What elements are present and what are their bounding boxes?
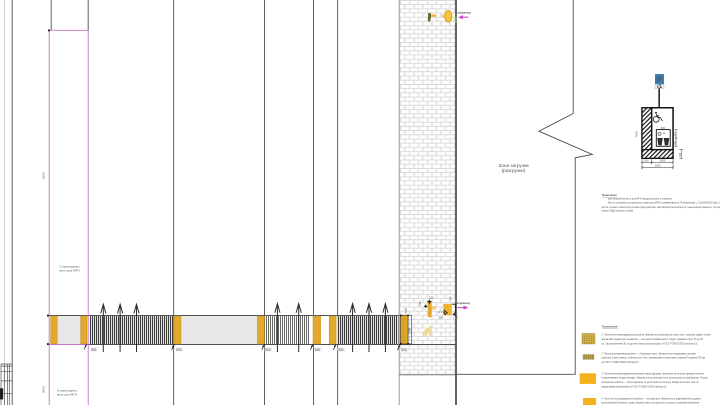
svg-text:нормы ПДД широкого плана.: нормы ПДД широкого плана. <box>602 210 634 213</box>
svg-text:P: P <box>657 76 663 85</box>
svg-text:месте стоянки транспорта долже: месте стоянки транспорта должен предусмо… <box>602 206 720 209</box>
svg-text:500: 500 <box>439 316 444 320</box>
svg-text:1:10: 1:10 <box>453 316 459 320</box>
svg-text:Позначення:: Позначення: <box>602 324 618 328</box>
svg-text:2000: 2000 <box>655 164 661 168</box>
svg-text:500: 500 <box>449 296 453 301</box>
svg-text:150: 150 <box>679 152 682 157</box>
svg-text:вхід/вихід: вхід/вихід <box>457 301 470 305</box>
svg-text:500: 500 <box>315 348 321 352</box>
svg-text:(разгрузки): (разгрузки) <box>502 168 526 173</box>
svg-text:розташування В верхніх сходів.: розташування В верхніх сходів. Ширина см… <box>601 402 700 405</box>
svg-text:форми або продольних елементів: форми або продольних елементів — на перш… <box>601 338 703 341</box>
svg-text:2. Тактильна напрямна розмітка: 2. Тактильна напрямна розмітка — «Напрям… <box>601 352 696 355</box>
svg-text:1. Тактильна попереджувальна р: 1. Тактильна попереджувальна розмітка. В… <box>601 334 711 337</box>
svg-text:шириною 8 (або чинна), глибино: шириною 8 (або чинна), глибиною до 5 мм … <box>601 357 705 360</box>
svg-text:150: 150 <box>674 132 677 137</box>
svg-text:500: 500 <box>338 348 344 352</box>
svg-text:500: 500 <box>661 126 666 130</box>
svg-text:см. За розміщенням 30 см до ме: см. За розміщенням 30 см до межі зони ру… <box>601 342 698 345</box>
svg-text:4000: 4000 <box>635 131 639 137</box>
svg-text:3. Тактильна попереджувальна р: 3. Тактильна попереджувальна розмітка пе… <box>601 372 704 375</box>
svg-text:1500: 1500 <box>659 159 665 163</box>
svg-text:500: 500 <box>404 308 408 313</box>
svg-text:500: 500 <box>265 348 271 352</box>
svg-text:контрастна розмітка — смуга ши: контрастна розмітка — смуга шириною 10 д… <box>601 381 699 384</box>
svg-text:вхід/вихід: вхід/вихід <box>458 10 471 14</box>
svg-text:500: 500 <box>401 348 407 352</box>
svg-text:до ГОСТ Р 52875-2018 (таблиця: до ГОСТ Р 52875-2018 (таблиця 2). <box>601 362 639 364</box>
svg-text:4. Тактильні попереджувальні р: 4. Тактильні попереджувальні розмітки — … <box>601 397 701 400</box>
svg-text:500: 500 <box>176 348 182 352</box>
svg-text:150: 150 <box>674 140 677 145</box>
svg-text:мест для МГН: мест для МГН <box>57 393 77 397</box>
svg-text:500: 500 <box>429 295 434 299</box>
svg-text:500: 500 <box>644 159 649 163</box>
svg-text:в organізованих входах-виходах: в organізованих входах-виходах. Ширина п… <box>601 377 708 380</box>
svg-text:нормативами визначений по ГОСТ: нормативами визначений по ГОСТ Р 52875-2… <box>601 385 667 388</box>
svg-text:1500: 1500 <box>408 327 412 334</box>
svg-text:+0.150: +0.150 <box>437 310 446 314</box>
svg-text:5000: 5000 <box>42 172 46 179</box>
svg-text:мест для МГН: мест для МГН <box>59 269 79 273</box>
svg-text:Место установки специального з: Место установки специального знака для М… <box>608 202 720 205</box>
svg-text:500: 500 <box>418 301 422 306</box>
svg-text:для устройства мест для МГН пр: для устройства мест для МГН предусмотрен… <box>608 197 673 200</box>
svg-text:500: 500 <box>91 348 97 352</box>
svg-text:5000: 5000 <box>42 386 46 393</box>
